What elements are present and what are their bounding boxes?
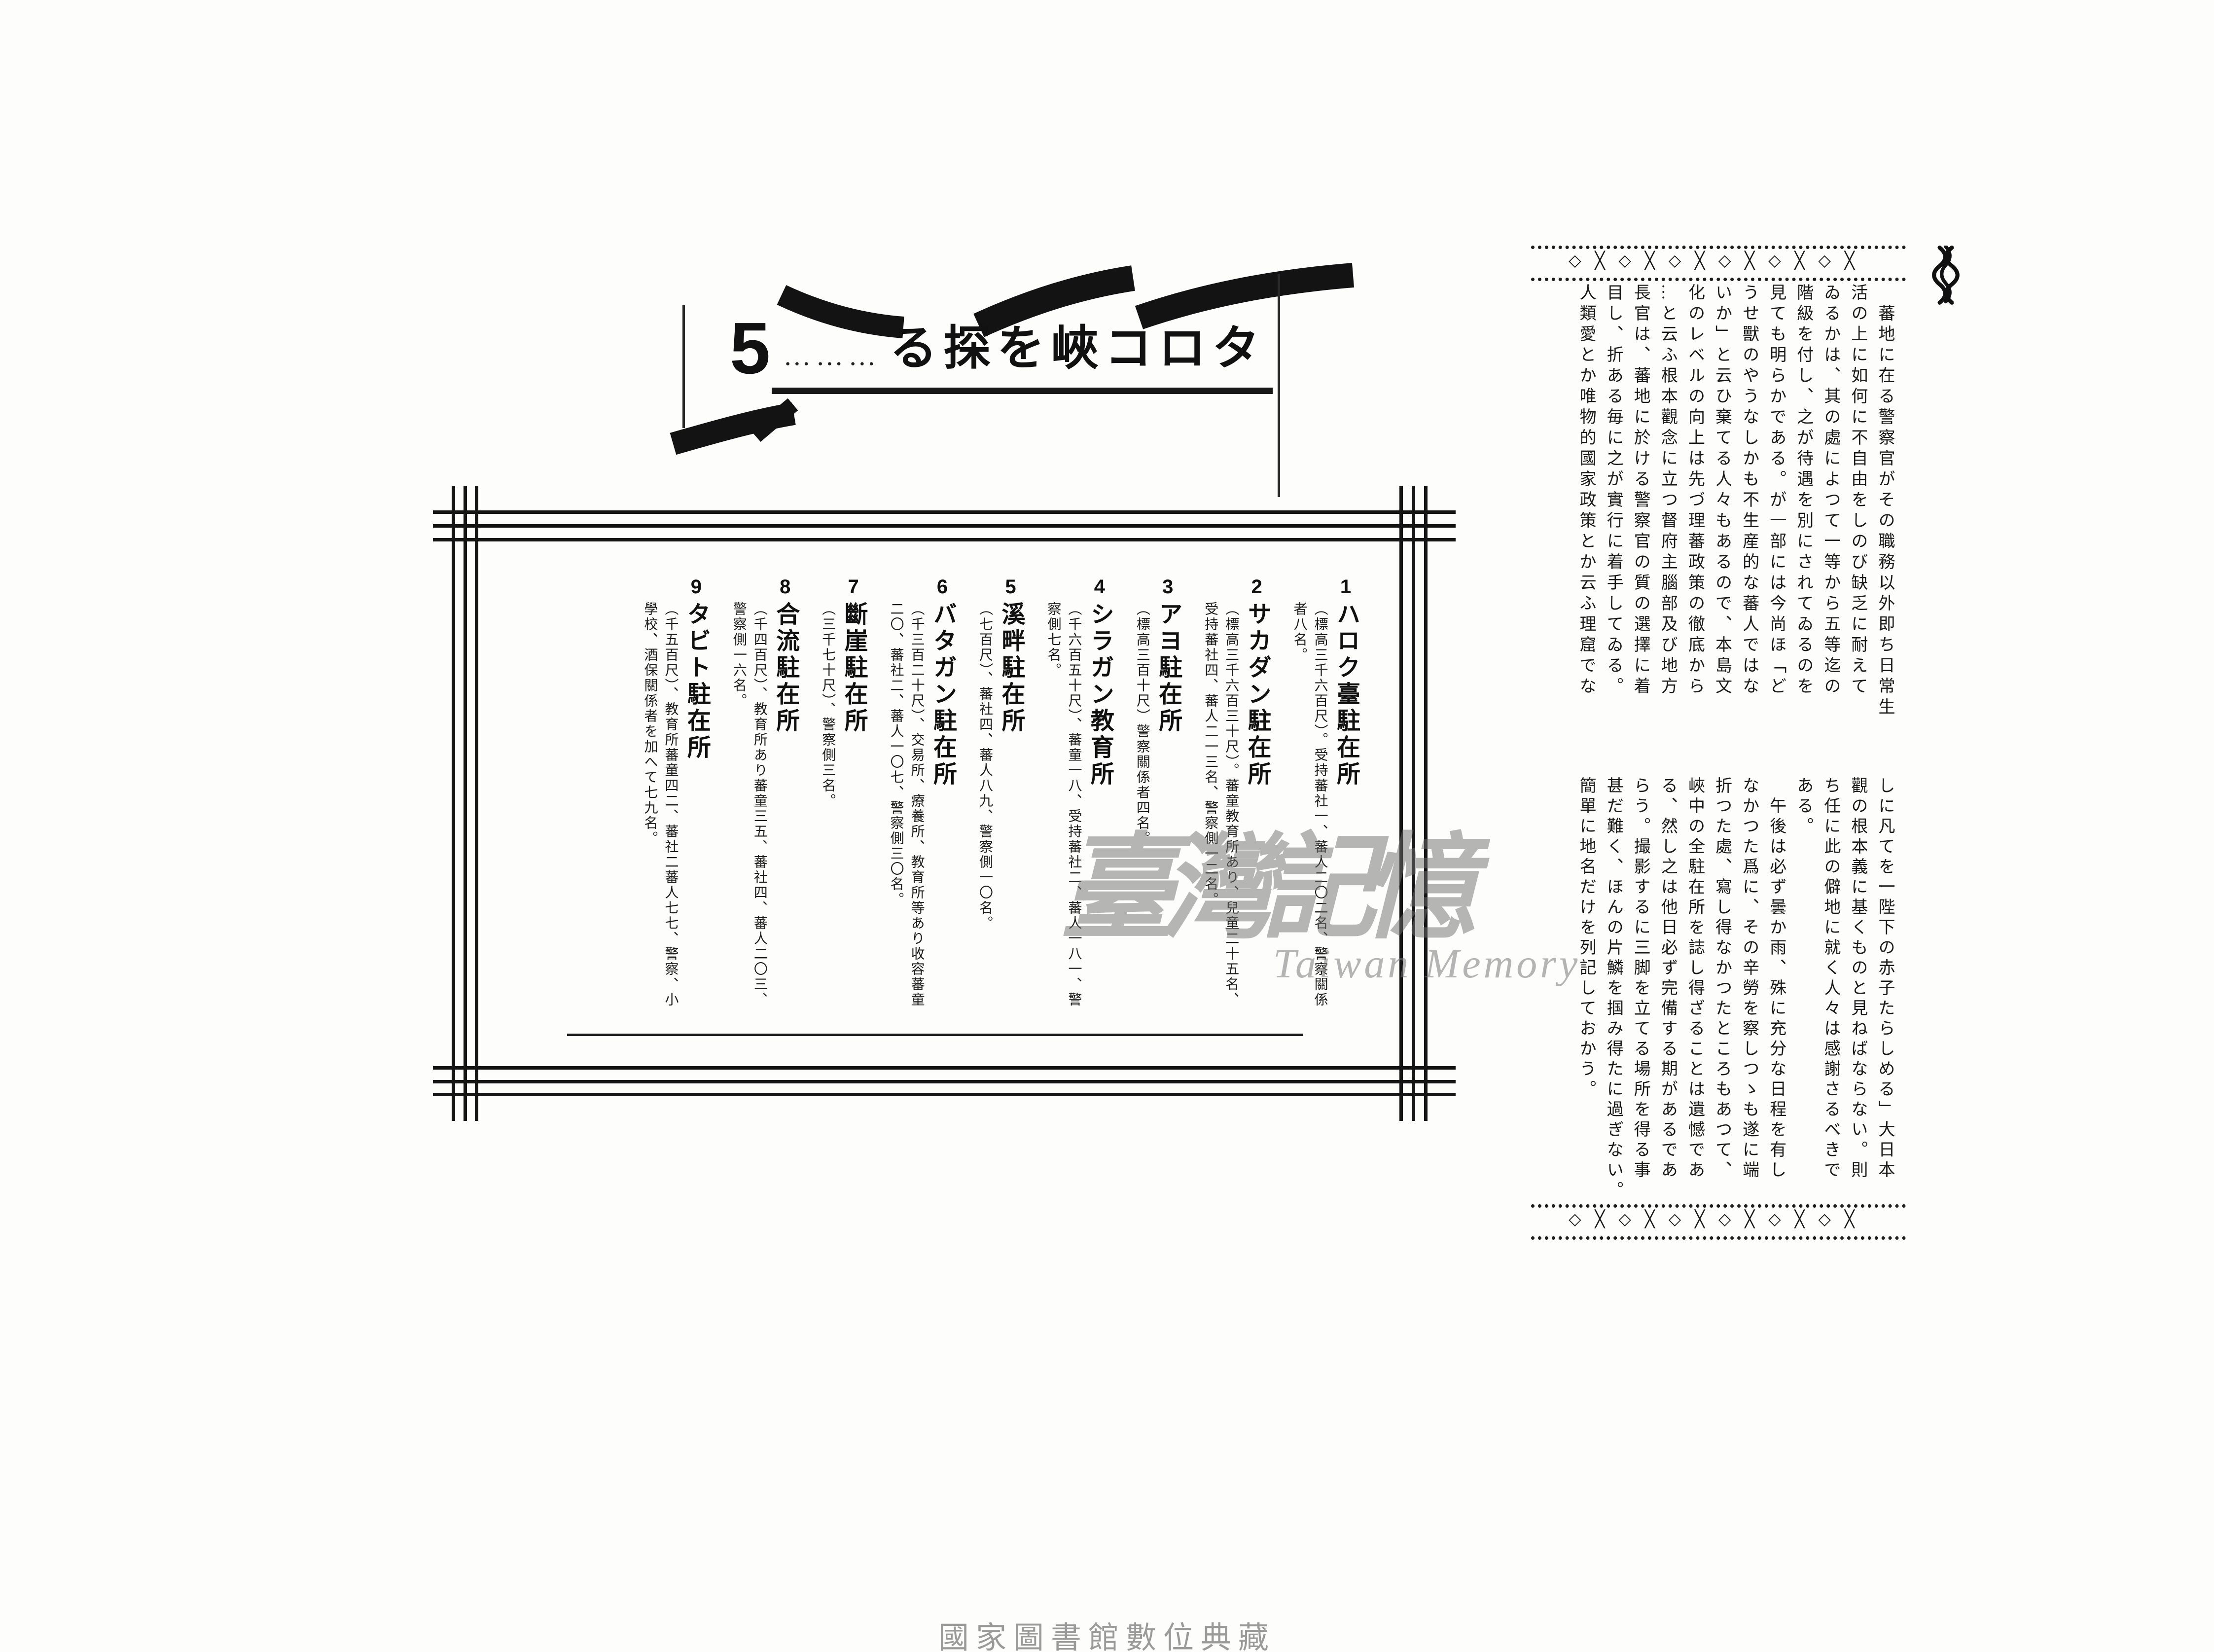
station-detail: （千四百尺）、教育所あり蕃童三五、蕃社四、蕃人二〇三、 警察側一六名。	[728, 576, 770, 1036]
station-detail: （三千七十尺）、警察側三名。	[817, 576, 838, 1036]
title-side-rule-left	[682, 305, 685, 428]
station-number: 3	[1157, 576, 1178, 599]
station-item: 6バタガン駐在所 （千三百二十尺）、交易所、療養所、教育所等あり收容蕃童 二〇、…	[886, 576, 958, 1036]
station-detail: （七百尺）、蕃社四、蕃人八九、警察側一〇名。	[974, 576, 995, 1036]
ornament-glyphs: ◇╳◇╳◇╳◇╳◇╳◇╳	[1569, 249, 1868, 272]
station-number: 6	[931, 576, 953, 599]
frame-line-bottom-2	[433, 1080, 1456, 1083]
station-name: 7斷崖駐在所	[838, 576, 868, 1036]
station-number: 7	[843, 576, 864, 599]
article-block-1: 蕃地に在る警察官がその職務以外即ち日常生 活の上に如何に不自由をしのび缺乏に耐え…	[1553, 284, 1898, 767]
ornament-glyphs: ◇╳◇╳◇╳◇╳◇╳◇╳	[1569, 1208, 1868, 1230]
footer-caption: 國家圖書館數位典藏	[938, 1613, 1276, 1652]
section-number: 5	[730, 312, 770, 385]
ornament-band-bottom: ◇╳◇╳◇╳◇╳◇╳◇╳	[1531, 1204, 1906, 1240]
station-name: 8合流駐在所	[770, 576, 800, 1036]
frame-line-top-3	[433, 538, 1456, 541]
frame-line-top-2	[433, 524, 1456, 528]
article-block-2: しに凡てを一陛下の赤子たらしめる」大日本 觀の根本義に基くものと見ねばならない。…	[1553, 777, 1898, 1206]
station-detail: （千五百尺）、教育所蕃童四二、蕃社二蕃人七七、警察、小 學校、酒保關係者を加へて…	[639, 576, 680, 1036]
frame-line-left-3	[475, 486, 478, 1121]
station-number: 1	[1335, 576, 1357, 599]
weave-knot-icon	[1918, 246, 1973, 307]
station-name: 9タビト駐在所	[680, 576, 711, 1036]
station-name: 5溪畔駐在所	[995, 576, 1026, 1036]
frame-line-left-2	[464, 486, 467, 1121]
station-item: 5溪畔駐在所 （七百尺）、蕃社四、蕃人八九、警察側一〇名。	[974, 576, 1026, 1036]
section-title: る探を峽コロタ	[890, 325, 1266, 372]
watermark-cjk: 臺灣記憶	[1060, 795, 1463, 961]
frame-line-bottom-3	[433, 1093, 1456, 1096]
station-number: 2	[1246, 576, 1268, 599]
station-item: 9タビト駐在所 （千五百尺）、教育所蕃童四二、蕃社二蕃人七七、警察、小 學校、酒…	[639, 576, 711, 1036]
station-detail: （千三百二十尺）、交易所、療養所、教育所等あり收容蕃童 二〇、蕃社二、蕃人一〇七…	[886, 576, 927, 1036]
station-number: 8	[774, 576, 796, 599]
frame-line-top-1	[433, 510, 1456, 514]
station-name: 6バタガン駐在所	[927, 576, 958, 1036]
frame-line-left-1	[452, 486, 455, 1121]
scanned-page: ◇╳◇╳◇╳◇╳◇╳◇╳ 蕃地に在る警察官がその職務以外即ち日常生 活の上に如何…	[0, 0, 2214, 1652]
station-number: 4	[1089, 576, 1110, 599]
title-side-rule-right	[1278, 274, 1280, 497]
watermark-latin: Taiwan Memory	[1273, 940, 1580, 988]
station-item: 8合流駐在所 （千四百尺）、教育所あり蕃童三五、蕃社四、蕃人二〇三、 警察側一六…	[728, 576, 800, 1036]
title-underline	[772, 388, 1273, 394]
ornament-band-top: ◇╳◇╳◇╳◇╳◇╳◇╳	[1531, 246, 1906, 281]
title-dot-leader: ………	[783, 340, 881, 372]
station-number: 9	[685, 576, 707, 599]
station-number: 5	[1000, 576, 1021, 599]
frame-line-bottom-1	[433, 1066, 1456, 1070]
station-item: 7斷崖駐在所 （三千七十尺）、警察側三名。	[817, 576, 868, 1036]
section-title-row: 5 ……… る探を峽コロタ	[730, 307, 1266, 391]
